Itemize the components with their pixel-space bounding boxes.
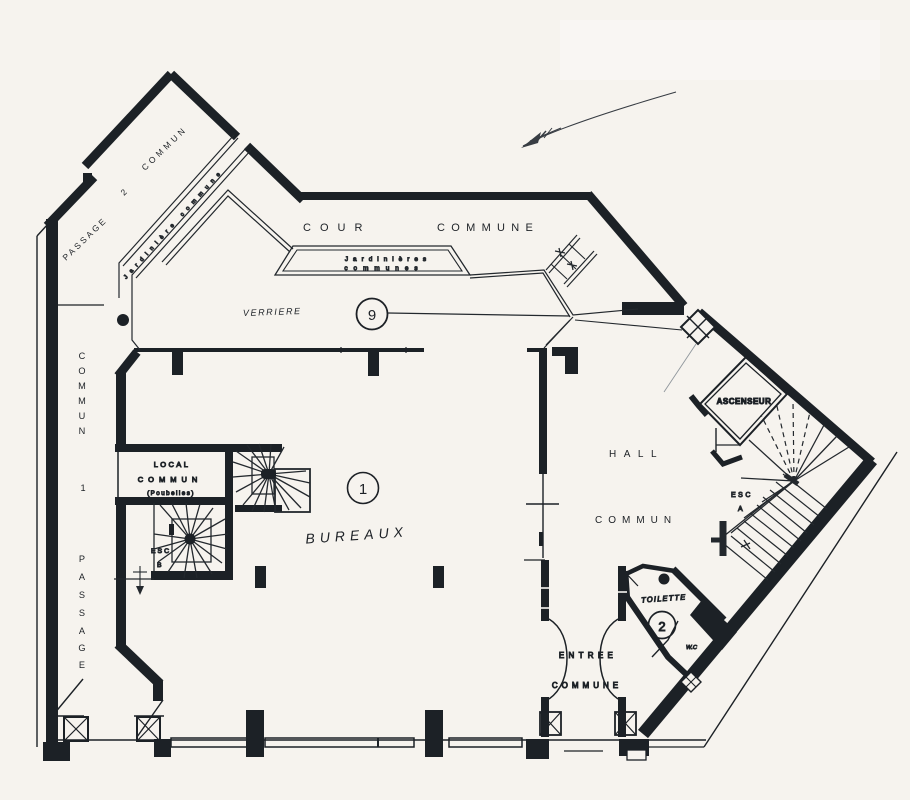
svg-text:N: N bbox=[79, 426, 86, 436]
svg-text:W.C: W.C bbox=[686, 645, 698, 651]
svg-text:A: A bbox=[738, 506, 743, 513]
svg-text:G: G bbox=[78, 643, 85, 653]
svg-text:ESC: ESC bbox=[731, 492, 753, 499]
svg-text:E: E bbox=[79, 660, 85, 670]
svg-text:O: O bbox=[78, 366, 85, 376]
svg-text:(Poubelles): (Poubelles) bbox=[147, 490, 195, 497]
svg-text:COUR: COUR bbox=[303, 222, 371, 234]
svg-text:S: S bbox=[79, 608, 85, 618]
svg-text:B: B bbox=[157, 562, 162, 569]
svg-text:ESC: ESC bbox=[151, 548, 171, 555]
svg-text:C: C bbox=[79, 351, 86, 361]
svg-text:communes: communes bbox=[344, 265, 423, 272]
svg-text:M: M bbox=[78, 396, 86, 406]
svg-text:LOCAL: LOCAL bbox=[154, 460, 191, 469]
svg-text:M: M bbox=[78, 381, 86, 391]
svg-text:A: A bbox=[79, 626, 86, 636]
svg-text:VERRIERE: VERRIERE bbox=[243, 306, 302, 318]
svg-text:COMMUNE: COMMUNE bbox=[552, 681, 622, 690]
svg-text:S: S bbox=[79, 590, 85, 600]
svg-text:P: P bbox=[79, 554, 85, 564]
svg-text:9: 9 bbox=[368, 307, 376, 324]
svg-text:A: A bbox=[79, 572, 86, 582]
svg-text:Jardinières: Jardinières bbox=[345, 256, 431, 263]
svg-text:1: 1 bbox=[359, 481, 367, 498]
svg-text:1: 1 bbox=[80, 483, 85, 493]
svg-text:ASCENSEUR: ASCENSEUR bbox=[717, 397, 772, 406]
svg-text:COMMUN: COMMUN bbox=[595, 515, 677, 526]
svg-text:COMMUN: COMMUN bbox=[138, 475, 203, 484]
svg-text:ENTREE: ENTREE bbox=[559, 651, 617, 660]
svg-text:2: 2 bbox=[658, 619, 665, 634]
svg-text:HALL: HALL bbox=[609, 449, 664, 460]
svg-text:U: U bbox=[79, 411, 86, 421]
svg-text:COMMUNE: COMMUNE bbox=[437, 222, 539, 234]
